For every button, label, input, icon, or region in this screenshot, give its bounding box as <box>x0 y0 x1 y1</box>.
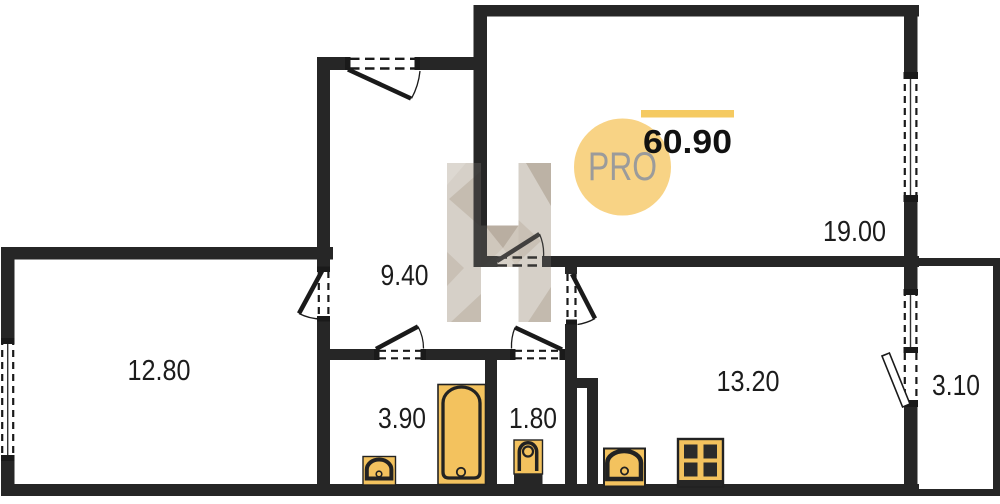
svg-text:60.90: 60.90 <box>643 123 732 160</box>
svg-text:12.80: 12.80 <box>128 355 191 387</box>
svg-text:3.90: 3.90 <box>378 403 426 435</box>
svg-text:9.40: 9.40 <box>381 260 429 292</box>
svg-text:1.80: 1.80 <box>509 403 557 435</box>
svg-text:3.10: 3.10 <box>932 370 980 402</box>
svg-text:13.20: 13.20 <box>717 366 780 398</box>
svg-text:19.00: 19.00 <box>823 216 886 248</box>
